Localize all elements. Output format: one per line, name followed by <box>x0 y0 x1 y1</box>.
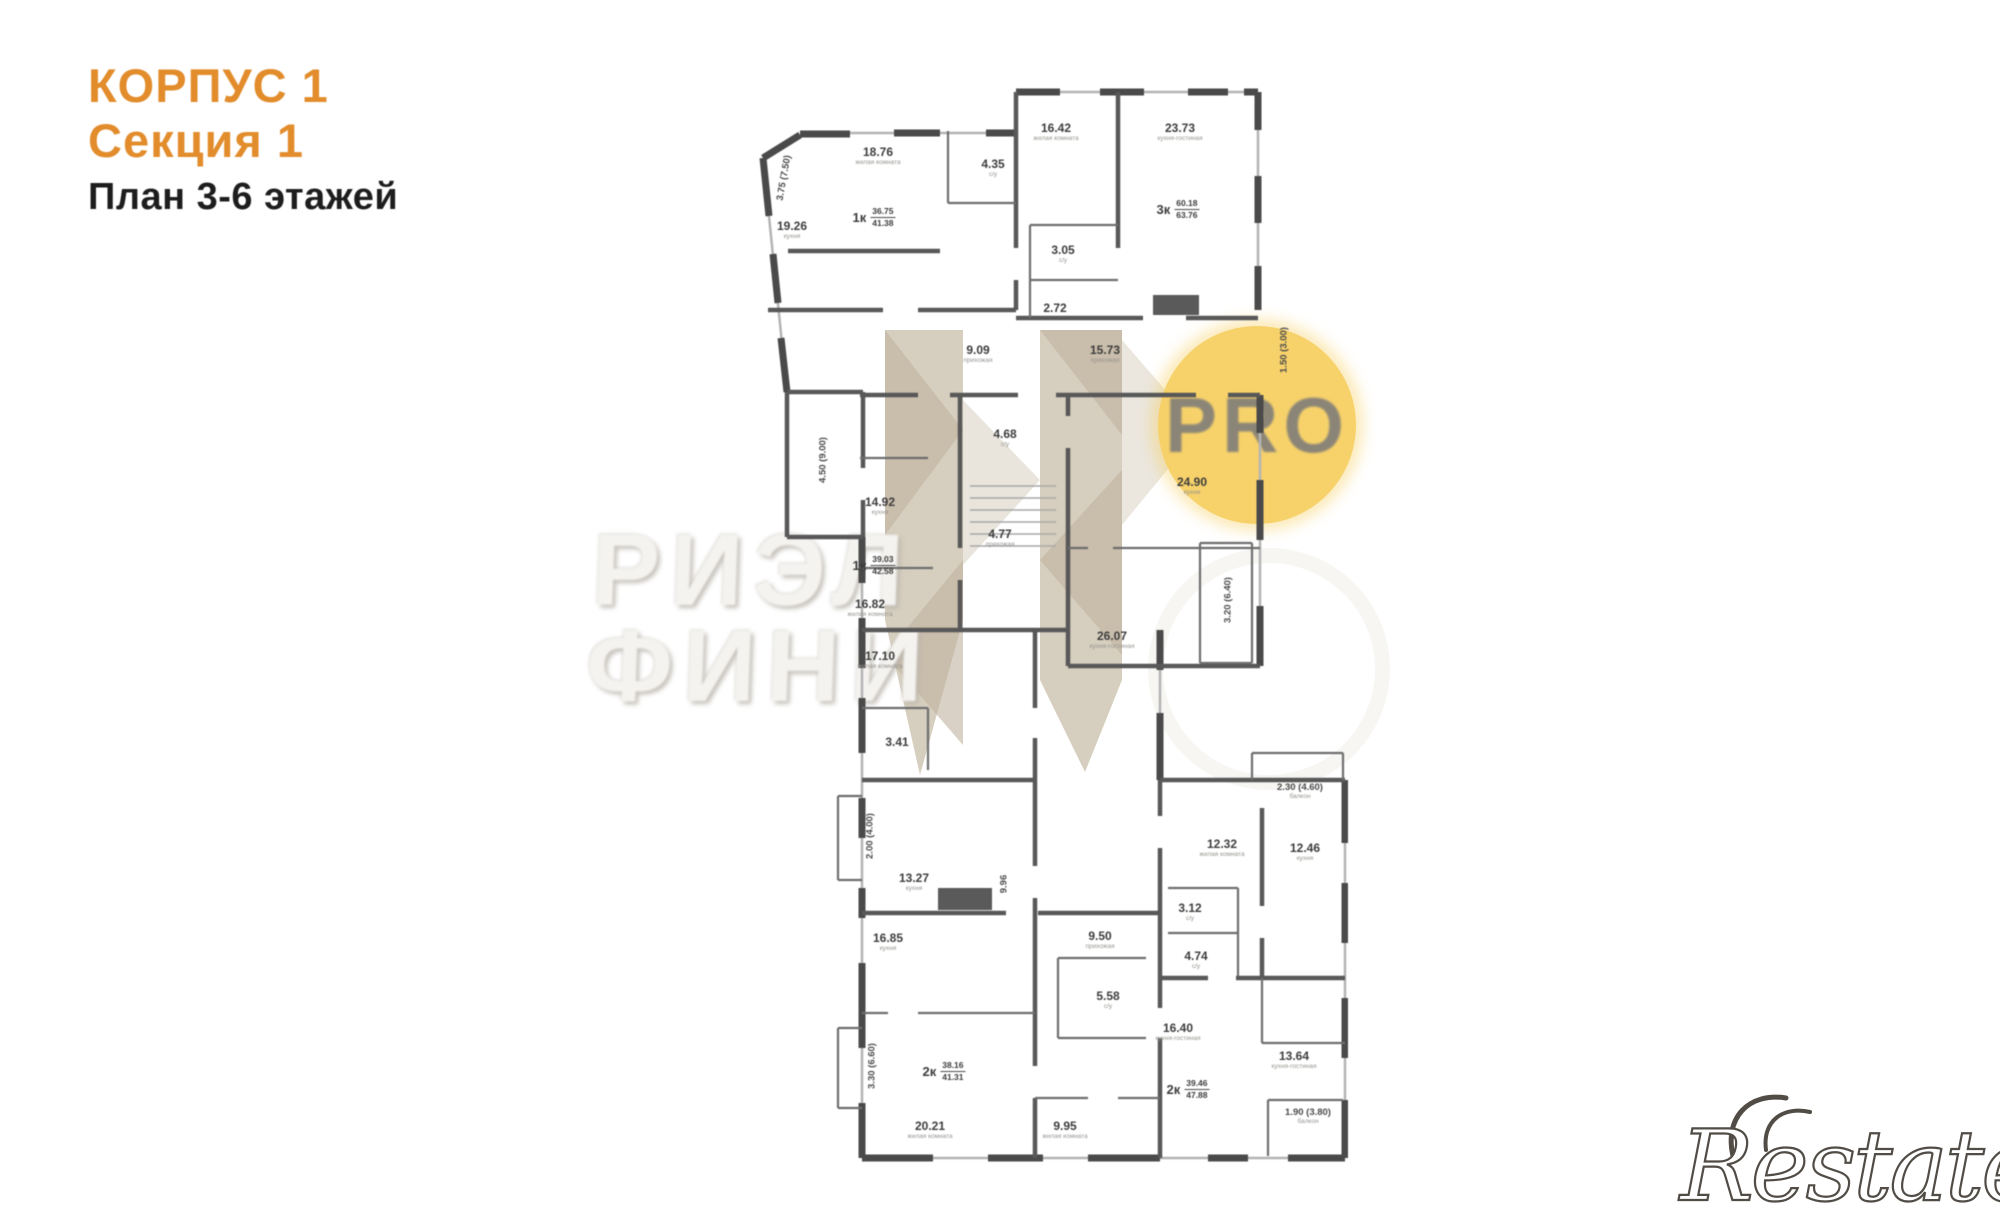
screenshot-stage: КОРПУС 1 Секция 1 План 3-6 этажей РИЭЛ Ф… <box>0 0 2000 1223</box>
title-building: КОРПУС 1 <box>88 58 398 113</box>
floor-plan-walls <box>588 8 1348 1200</box>
title-plan: План 3-6 этажей <box>88 175 398 220</box>
title-block: КОРПУС 1 Секция 1 План 3-6 этажей <box>88 58 398 220</box>
restate-logo: Restate <box>1638 1072 2000 1222</box>
restate-logo-text: Restate <box>1678 1110 2000 1222</box>
elevator-shaft <box>938 888 992 910</box>
title-section: Секция 1 <box>88 113 398 168</box>
shaft-block <box>1153 295 1199 315</box>
